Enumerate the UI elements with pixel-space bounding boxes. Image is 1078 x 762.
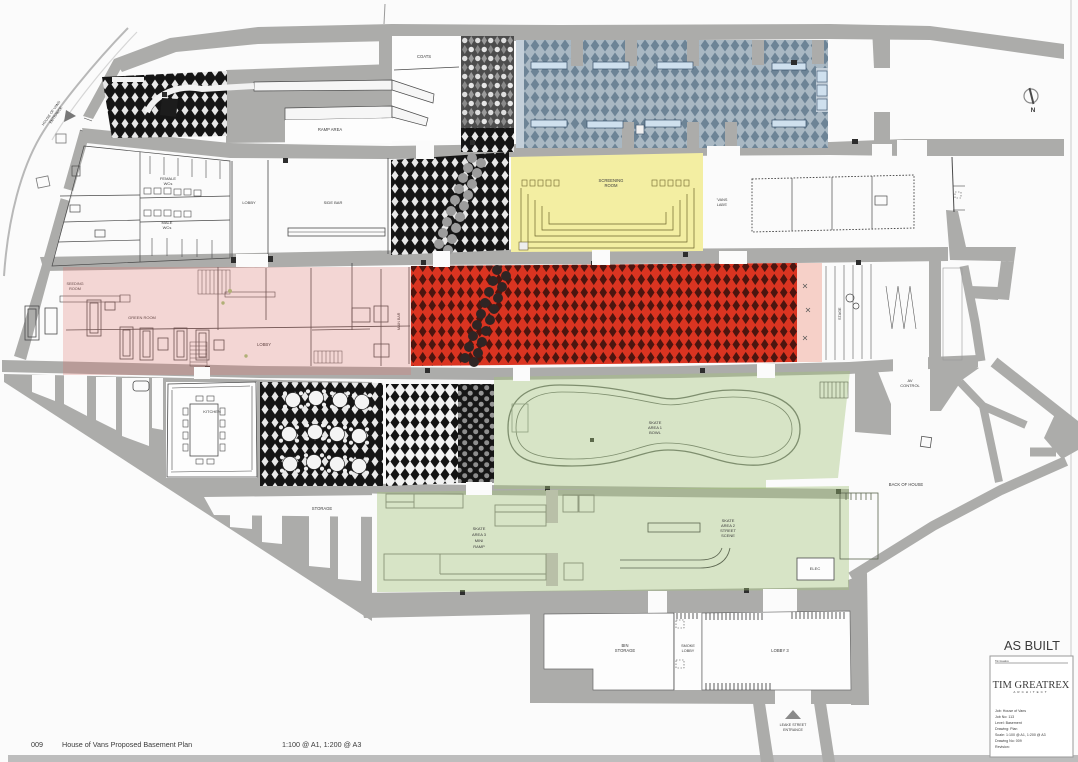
svg-text:LABS': LABS' [717,203,728,207]
svg-text:SCENE: SCENE [721,533,735,538]
svg-text:SKATE: SKATE [473,526,486,531]
svg-text:LOBBY 3: LOBBY 3 [771,648,789,653]
svg-text:STAGE: STAGE [838,307,842,320]
svg-text:Job: House of Vans: Job: House of Vans [995,709,1026,713]
svg-text:STORAGE: STORAGE [312,506,333,511]
svg-text:RAMP AREA: RAMP AREA [318,127,343,132]
svg-text:ENTRANCE: ENTRANCE [783,728,803,732]
svg-text:Drawing No: 009: Drawing No: 009 [995,739,1022,743]
svg-text:1:100 @ A1, 1:200 @ A3: 1:100 @ A1, 1:200 @ A3 [282,740,361,749]
svg-text:LOBBY: LOBBY [242,200,256,205]
svg-text:WCs: WCs [164,181,173,186]
svg-text:House of Vans Proposed Basemen: House of Vans Proposed Basement Plan [62,740,192,749]
svg-text:SMOKE: SMOKE [681,644,695,648]
svg-text:LOBBY: LOBBY [682,649,695,653]
svg-text:CONTROL: CONTROL [900,383,920,388]
svg-text:WCs: WCs [163,225,172,230]
svg-text:Job No: 113: Job No: 113 [995,715,1014,719]
svg-text:KITCHEN: KITCHEN [203,409,221,414]
svg-text:Drawing: Plan: Drawing: Plan [995,727,1017,731]
svg-text:STORAGE: STORAGE [615,648,636,653]
svg-text:LEAKE STREET: LEAKE STREET [780,723,808,727]
svg-text:Revision:: Revision: [995,745,1010,749]
svg-text:ELEC: ELEC [810,566,821,571]
svg-text:Scale: 1:100 @ A1, 1:200 @ A3: Scale: 1:100 @ A1, 1:200 @ A3 [995,733,1046,737]
svg-text:Tim Greatrex: Tim Greatrex [995,660,1010,663]
svg-text:N: N [1031,107,1036,114]
svg-text:009: 009 [31,740,43,749]
svg-text:ARCHITECT: ARCHITECT [1013,690,1048,694]
svg-text:SIDE BAR: SIDE BAR [324,200,343,205]
svg-text:BACK OF HOUSE: BACK OF HOUSE [889,482,924,487]
svg-text:COATS: COATS [417,54,431,59]
svg-text:'VANS: 'VANS [717,198,728,202]
svg-text:AREA 3: AREA 3 [472,532,487,537]
svg-text:ROOM: ROOM [604,183,618,188]
svg-text:RAMP: RAMP [473,544,485,549]
svg-text:BOWL: BOWL [649,430,662,435]
svg-text:Level: Basement: Level: Basement [995,721,1022,725]
svg-text:MINI: MINI [475,538,483,543]
svg-text:AS BUILT: AS BUILT [1004,638,1060,653]
